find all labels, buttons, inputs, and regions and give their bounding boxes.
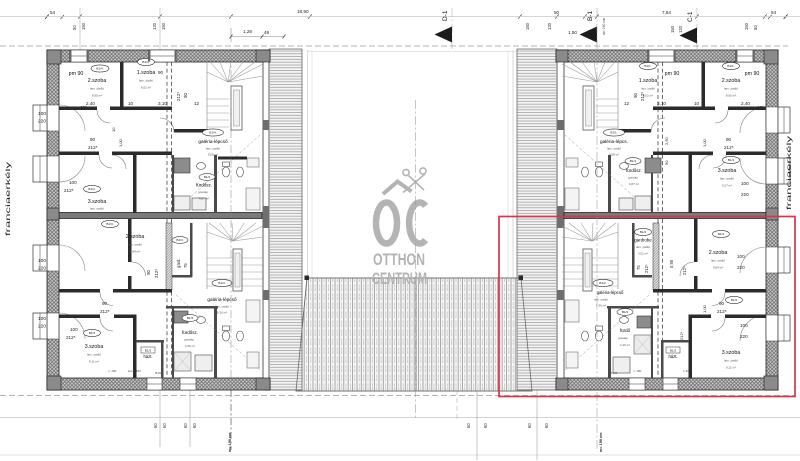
svg-text:házt.: házt.: [668, 354, 677, 359]
svg-text:50: 50: [753, 25, 758, 30]
svg-text:franciaerkély: franciaerkély: [5, 161, 12, 236]
svg-text:lam. padló: lam. padló: [128, 243, 142, 247]
svg-text:1,00: 1,00: [118, 138, 123, 147]
svg-text:fürdő: fürdő: [620, 328, 631, 333]
svg-text:2.szoba: 2.szoba: [88, 78, 107, 84]
svg-text:lam. padló: lam. padló: [87, 353, 101, 357]
svg-text:7,84: 7,84: [662, 10, 671, 15]
svg-text:B1/4.: B1/4.: [209, 131, 216, 135]
svg-text:3.szoba: 3.szoba: [85, 344, 104, 350]
svg-text:2,50: 2,50: [664, 136, 669, 145]
svg-text:greslap: greslap: [198, 190, 208, 194]
svg-text:2,40: 2,40: [741, 101, 750, 106]
svg-text:100: 100: [740, 323, 748, 328]
svg-text:120: 120: [152, 22, 157, 30]
svg-text:galéria-lépcső: galéria-lépcső: [198, 139, 228, 144]
svg-text:pm 90: pm 90: [665, 71, 680, 77]
svg-text:90: 90: [633, 93, 638, 98]
svg-text:2.szoba: 2.szoba: [126, 234, 145, 240]
svg-text:18,90: 18,90: [297, 9, 309, 14]
svg-text:100: 100: [737, 254, 745, 259]
svg-text:212⁵: 212⁵: [64, 188, 74, 193]
svg-text:OTTHON: OTTHON: [373, 251, 425, 269]
svg-text:3,10: 3,10: [158, 101, 167, 106]
svg-text:90: 90: [664, 160, 669, 165]
svg-text:220: 220: [737, 265, 745, 270]
svg-text:pm 90: pm 90: [69, 71, 84, 77]
svg-text:1,50: 1,50: [568, 30, 577, 35]
svg-text:48: 48: [264, 30, 270, 35]
svg-text:212⁵: 212⁵: [154, 269, 159, 278]
svg-text:házt.: házt.: [143, 354, 152, 359]
svg-text:9,84 m²: 9,84 m²: [713, 266, 723, 270]
svg-text:B1/1.: B1/1.: [727, 64, 734, 68]
svg-text:fürdősz.: fürdősz.: [196, 183, 212, 188]
svg-text:100: 100: [69, 180, 77, 185]
svg-text:lam. padló: lam. padló: [724, 87, 738, 91]
svg-text:9,11 m²: 9,11 m²: [726, 366, 736, 370]
svg-text:212⁵: 212⁵: [100, 309, 110, 314]
svg-text:212⁵: 212⁵: [717, 309, 727, 314]
svg-text:9,27 m²: 9,27 m²: [722, 184, 732, 188]
svg-text:greslap: greslap: [184, 338, 194, 342]
svg-text:B1/4: B1/4: [204, 175, 211, 179]
svg-text:B1/1.: B1/1.: [644, 64, 651, 68]
svg-text:212⁵: 212⁵: [640, 92, 645, 101]
svg-text:220: 220: [741, 192, 749, 197]
svg-text:120: 120: [547, 22, 552, 30]
svg-text:franciaerkély: franciaerkély: [786, 135, 793, 210]
svg-text:fürdősz.: fürdősz.: [626, 168, 642, 173]
svg-text:100: 100: [38, 111, 46, 117]
svg-text:90: 90: [719, 301, 725, 306]
svg-text:1,28: 1,28: [243, 29, 252, 34]
svg-text:50: 50: [72, 25, 77, 30]
svg-text:150: 150: [161, 22, 166, 30]
svg-text:9,08 m²: 9,08 m²: [609, 153, 619, 157]
svg-text:lam. padló: lam. padló: [607, 147, 621, 151]
svg-text:B1/1: B1/1: [728, 158, 735, 162]
svg-text:Ø160: Ø160: [610, 371, 618, 375]
svg-text:90: 90: [726, 137, 732, 142]
svg-text:küsz. 180: küsz. 180: [128, 369, 141, 373]
svg-text:100: 100: [38, 316, 46, 322]
svg-text:90: 90: [90, 137, 96, 142]
svg-text:212⁵: 212⁵: [724, 145, 734, 150]
svg-text:220: 220: [740, 334, 748, 339]
svg-text:lam. padló: lam. padló: [139, 79, 153, 83]
svg-text:D-1: D-1: [442, 10, 449, 21]
svg-text:1,00: 1,00: [702, 138, 707, 147]
svg-text:6,36 m²: 6,36 m²: [596, 304, 606, 308]
svg-text:1,30: 1,30: [683, 369, 689, 373]
svg-text:lam. padló: lam. padló: [206, 147, 220, 151]
svg-text:12: 12: [194, 101, 200, 106]
svg-text:220: 220: [38, 266, 46, 272]
svg-text:212⁵: 212⁵: [88, 145, 98, 150]
svg-text:greslap: greslap: [628, 176, 638, 180]
svg-text:150: 150: [744, 22, 749, 30]
svg-text:3.szoba: 3.szoba: [718, 168, 737, 174]
svg-text:B1/3.: B1/3.: [106, 222, 113, 226]
svg-text:B1/3.: B1/3.: [218, 281, 225, 285]
svg-text:n: 180: n: 180: [108, 369, 117, 373]
svg-text:4,46 m²: 4,46 m²: [620, 343, 630, 347]
svg-text:B1/2: B1/2: [731, 298, 738, 302]
svg-text:1.szoba: 1.szoba: [137, 70, 156, 76]
svg-text:lam. padló: lam. padló: [90, 207, 104, 211]
svg-text:60: 60: [162, 423, 167, 428]
svg-text:B1/3.: B1/3.: [176, 238, 183, 242]
svg-text:galéria-lépcső: galéria-lépcső: [597, 290, 624, 295]
svg-text:B1/2: B1/2: [640, 230, 647, 234]
svg-text:3.szoba: 3.szoba: [88, 199, 107, 205]
svg-text:4,46 m²: 4,46 m²: [185, 344, 195, 348]
svg-text:2,40: 2,40: [86, 101, 95, 106]
svg-text:m= 190 cm: m= 190 cm: [228, 432, 232, 452]
svg-text:B1/3: B1/3: [145, 349, 152, 353]
svg-text:100: 100: [38, 258, 46, 264]
svg-text:m= 190 cm: m= 190 cm: [602, 18, 606, 35]
svg-text:C-1: C-1: [687, 11, 694, 22]
svg-text:m= 190 cm: m= 190 cm: [599, 432, 603, 452]
svg-text:gardrobe: gardrobe: [634, 238, 652, 243]
svg-text:60: 60: [183, 423, 188, 428]
svg-text:2.szoba: 2.szoba: [722, 78, 741, 84]
svg-text:220: 220: [38, 119, 46, 125]
svg-text:10: 10: [694, 101, 700, 106]
svg-text:54: 54: [50, 10, 56, 15]
svg-text:galéria-lépcs.: galéria-lépcs.: [600, 139, 628, 144]
svg-text:150: 150: [670, 25, 675, 33]
svg-text:lam. padló: lam. padló: [711, 259, 725, 263]
svg-text:12: 12: [624, 101, 630, 106]
svg-text:9,84 m²: 9,84 m²: [130, 250, 140, 254]
svg-text:Ø160: Ø160: [155, 371, 163, 375]
svg-text:3,01 m²: 3,01 m²: [638, 252, 648, 256]
svg-text:150: 150: [525, 22, 530, 30]
svg-text:212⁵: 212⁵: [66, 335, 76, 340]
svg-text:150: 150: [81, 22, 86, 30]
svg-text:B1/1.: B1/1.: [610, 131, 617, 135]
svg-text:75: 75: [636, 265, 641, 270]
svg-text:60: 60: [483, 423, 488, 428]
svg-text:B1/3: B1/3: [89, 331, 96, 335]
svg-text:CENTRUM: CENTRUM: [372, 270, 427, 288]
svg-text:90: 90: [102, 301, 108, 306]
svg-text:pm 90: pm 90: [745, 71, 760, 77]
svg-text:4,87 m²: 4,87 m²: [199, 197, 209, 201]
svg-text:9,08 m²: 9,08 m²: [208, 153, 218, 157]
svg-text:4,87 m²: 4,87 m²: [629, 182, 639, 186]
svg-text:lam. padló: lam. padló: [720, 177, 734, 181]
svg-text:90: 90: [158, 70, 164, 75]
svg-text:B1/2: B1/2: [718, 232, 725, 236]
svg-text:10: 10: [111, 127, 116, 132]
svg-text:greslap: greslap: [618, 336, 628, 340]
svg-text:60: 60: [192, 423, 197, 428]
svg-text:212⁵: 212⁵: [644, 264, 649, 273]
svg-text:48°: 48°: [757, 105, 764, 110]
svg-text:B1/2.: B1/2.: [599, 281, 606, 285]
svg-text:90: 90: [183, 93, 188, 98]
svg-text:8,02 m²: 8,02 m²: [141, 86, 151, 90]
svg-text:212⁵: 212⁵: [176, 92, 181, 101]
svg-text:100: 100: [741, 181, 749, 186]
svg-text:lam. padló: lam. padló: [90, 87, 104, 91]
svg-text:lam. padló: lam. padló: [641, 87, 655, 91]
svg-text:gard.: gard.: [176, 258, 181, 268]
svg-text:0,90: 0,90: [669, 259, 674, 268]
svg-text:10: 10: [128, 101, 134, 106]
svg-text:8,95 m²: 8,95 m²: [92, 94, 102, 98]
svg-text:2.szoba: 2.szoba: [709, 250, 728, 256]
svg-text:B-1: B-1: [587, 11, 594, 22]
svg-text:1,00: 1,00: [702, 304, 707, 313]
svg-text:B1/4.: B1/4.: [96, 67, 103, 71]
svg-text:fürdősz.: fürdősz.: [182, 330, 198, 335]
svg-text:n: 180: n: 180: [633, 369, 642, 373]
svg-text:3,10: 3,10: [657, 101, 666, 106]
svg-text:48°: 48°: [80, 105, 87, 110]
svg-text:220: 220: [38, 324, 46, 330]
svg-text:8,95 m²: 8,95 m²: [726, 94, 736, 98]
svg-text:1.szoba: 1.szoba: [639, 78, 658, 84]
svg-text:212⁵: 212⁵: [682, 266, 687, 275]
svg-text:B1/3: B1/3: [187, 316, 194, 320]
svg-text:6,36 m²: 6,36 m²: [217, 311, 227, 315]
svg-text:B1/2: B1/2: [670, 349, 677, 353]
svg-text:9,11 m²: 9,11 m²: [89, 360, 99, 364]
svg-text:60: 60: [466, 423, 471, 428]
svg-text:B1/2: B1/2: [622, 310, 629, 314]
svg-text:B1/4.: B1/4.: [88, 187, 95, 191]
svg-text:120: 120: [678, 25, 683, 33]
svg-text:B1/1: B1/1: [630, 159, 637, 163]
svg-text:60: 60: [153, 423, 158, 428]
svg-text:60: 60: [527, 423, 532, 428]
svg-text:50: 50: [554, 10, 560, 15]
svg-text:54: 54: [771, 10, 777, 15]
svg-text:lam. padló: lam. padló: [215, 305, 229, 309]
svg-text:lam. padló: lam. padló: [636, 245, 650, 249]
svg-text:100: 100: [70, 327, 78, 332]
svg-text:lam. padló: lam. padló: [724, 359, 738, 363]
svg-text:3.szoba: 3.szoba: [722, 350, 741, 356]
svg-text:212⁵: 212⁵: [679, 331, 684, 340]
svg-text:90: 90: [146, 270, 151, 275]
svg-text:lam. padló: lam. padló: [594, 298, 608, 302]
svg-text:galéria-lépcső: galéria-lépcső: [207, 297, 237, 302]
svg-text:75: 75: [183, 263, 188, 268]
svg-text:60: 60: [544, 423, 549, 428]
